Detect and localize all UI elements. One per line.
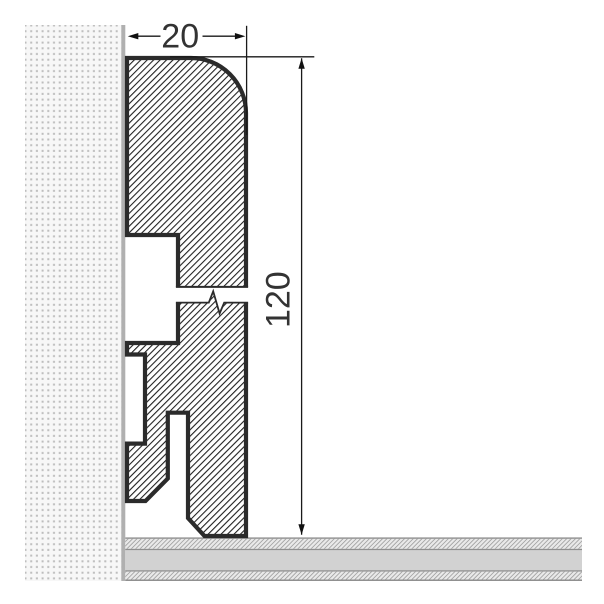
svg-text:20: 20 bbox=[161, 18, 199, 56]
svg-text:120: 120 bbox=[260, 271, 298, 328]
